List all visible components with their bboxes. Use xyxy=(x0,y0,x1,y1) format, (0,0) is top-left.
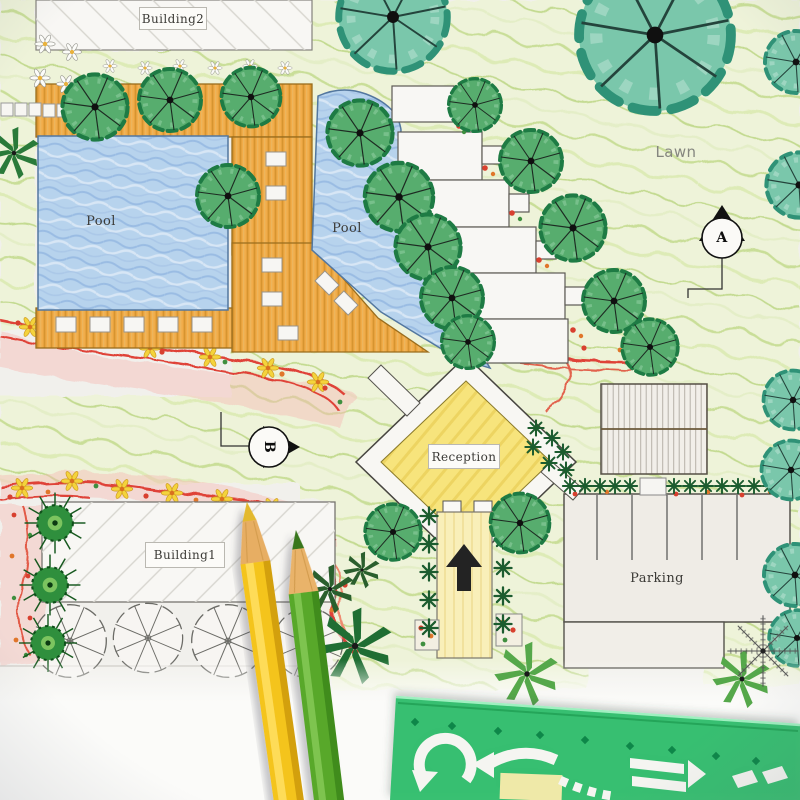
parking-label: Parking xyxy=(627,569,687,587)
building1-label: Building1 xyxy=(145,542,225,568)
reception-label: Reception xyxy=(428,444,500,469)
photo-vignette xyxy=(0,0,800,800)
landscape-plan-photo: Building2 Pool Pool Lawn Reception Build… xyxy=(0,0,800,800)
section-marker-b-letter: B xyxy=(261,439,277,455)
building2-label: Building2 xyxy=(139,7,207,30)
pool-left-label: Pool xyxy=(78,212,124,230)
pool-center-label: Pool xyxy=(324,219,370,237)
section-marker-a-letter: A xyxy=(714,230,730,246)
lawn-label: Lawn xyxy=(648,142,704,162)
plan-drawing xyxy=(0,0,800,800)
